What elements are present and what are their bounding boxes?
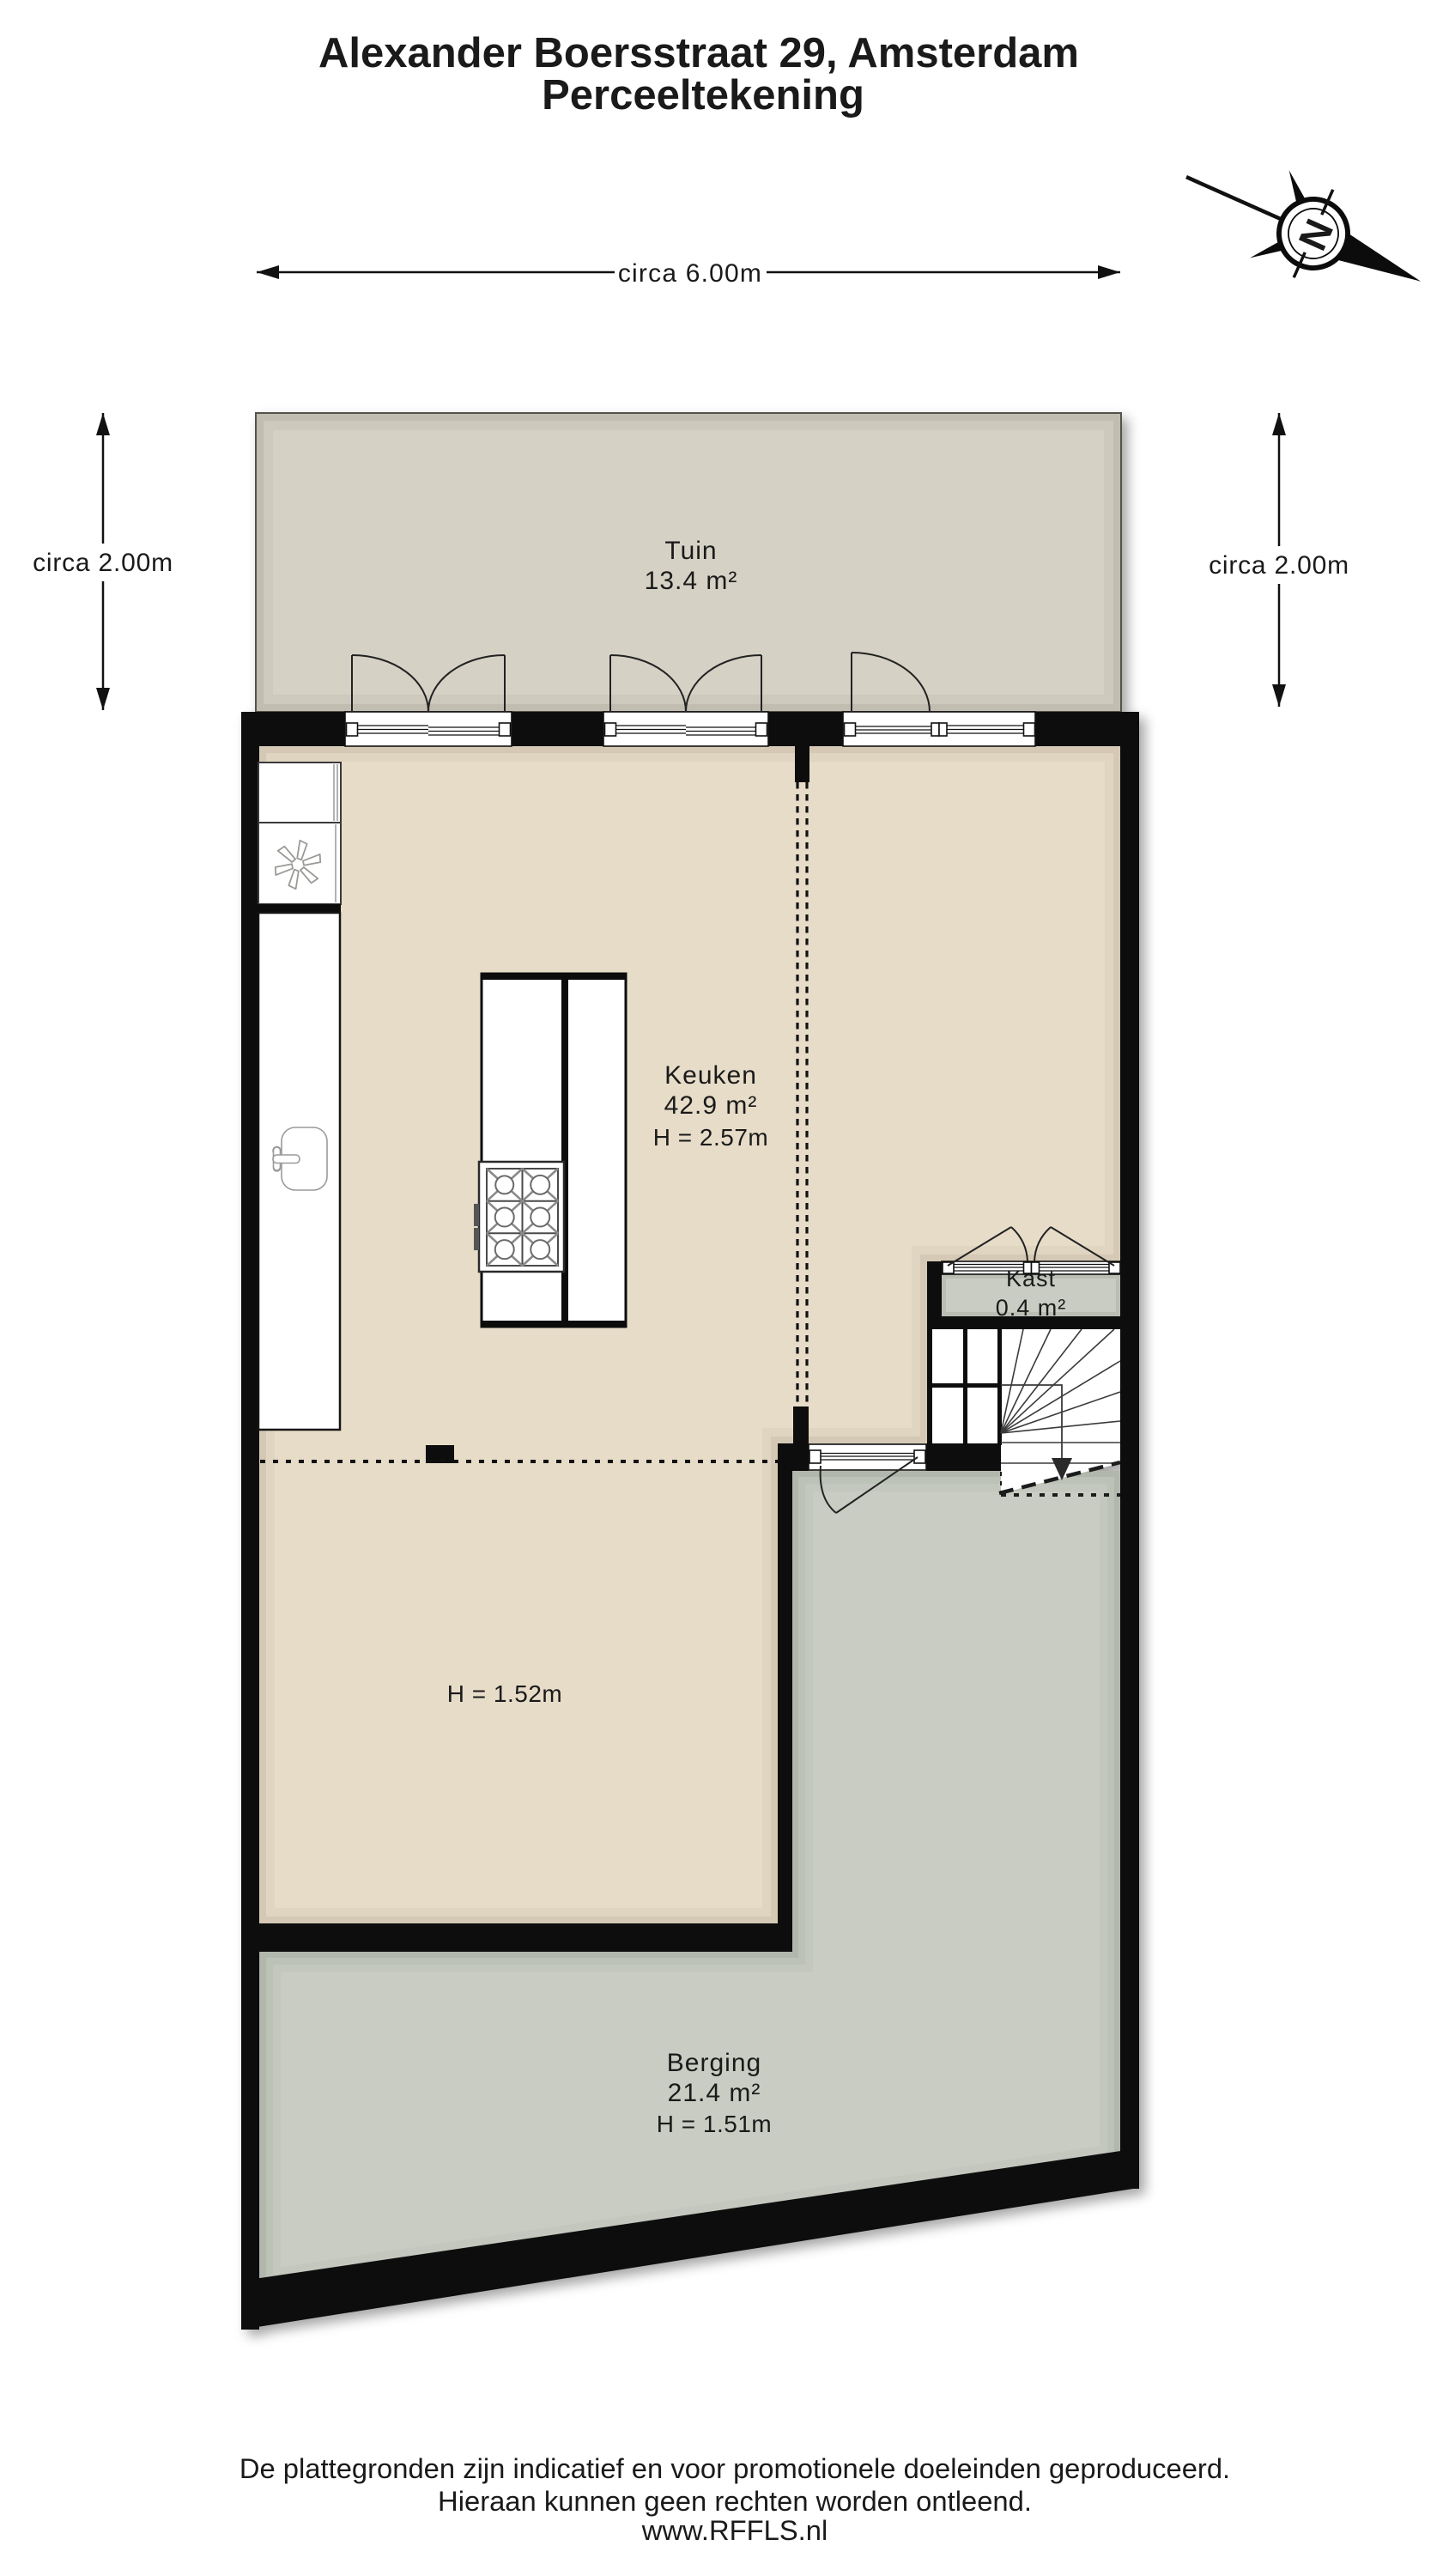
svg-text:Keuken: Keuken — [664, 1061, 757, 1090]
svg-text:H = 1.52m: H = 1.52m — [447, 1680, 562, 1707]
svg-text:www.RFFLS.nl: www.RFFLS.nl — [641, 2514, 828, 2546]
svg-text:H = 2.57m: H = 2.57m — [653, 1124, 768, 1151]
svg-text:Hieraan kunnen geen rechten wo: Hieraan kunnen geen rechten worden ontle… — [438, 2485, 1032, 2517]
svg-text:Tuin: Tuin — [664, 537, 717, 565]
svg-text:circa 2.00m: circa 2.00m — [1209, 551, 1349, 580]
svg-text:De plattegronden zijn indicati: De plattegronden zijn indicatief en voor… — [239, 2452, 1230, 2484]
svg-text:13.4 m²: 13.4 m² — [645, 567, 738, 595]
svg-text:0.4 m²: 0.4 m² — [996, 1295, 1067, 1321]
svg-text:Alexander Boersstraat 29, Amst: Alexander Boersstraat 29, Amsterdam — [318, 30, 1079, 76]
svg-text:21.4 m²: 21.4 m² — [668, 2079, 761, 2107]
svg-text:H = 1.51m: H = 1.51m — [657, 2111, 772, 2137]
svg-text:Berging: Berging — [667, 2049, 761, 2077]
svg-text:Perceeltekening: Perceeltekening — [542, 72, 864, 118]
svg-text:42.9 m²: 42.9 m² — [664, 1091, 758, 1120]
svg-text:Kast: Kast — [1006, 1266, 1056, 1291]
svg-text:circa 2.00m: circa 2.00m — [33, 549, 173, 577]
svg-text:circa 6.00m: circa 6.00m — [618, 259, 762, 288]
